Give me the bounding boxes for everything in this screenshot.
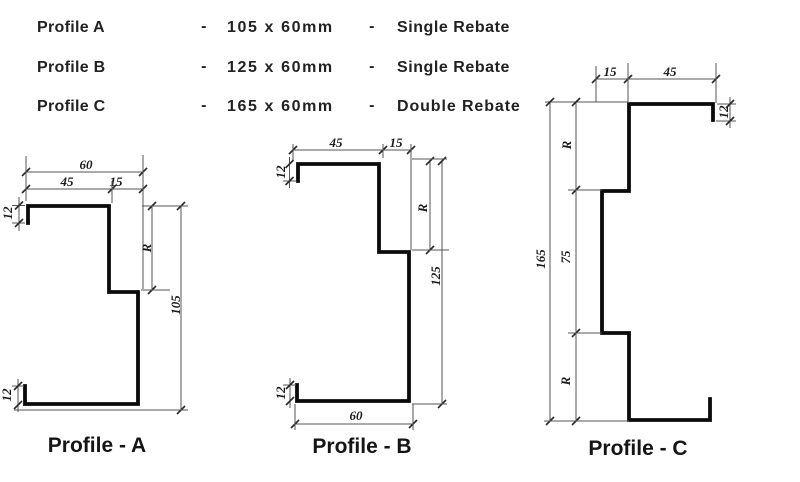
svg-text:105: 105 bbox=[168, 295, 183, 315]
svg-text:Profile C: Profile C bbox=[37, 98, 106, 115]
svg-text:12: 12 bbox=[716, 105, 731, 119]
svg-text:-: - bbox=[201, 97, 207, 114]
svg-text:Profile - A: Profile - A bbox=[48, 434, 146, 457]
svg-text:Double Rebate: Double Rebate bbox=[397, 98, 521, 115]
svg-text:75: 75 bbox=[558, 250, 573, 264]
svg-text:-: - bbox=[201, 58, 207, 75]
svg-text:Single Rebate: Single Rebate bbox=[397, 59, 510, 76]
svg-text:-: - bbox=[369, 58, 375, 75]
svg-text:125 x 60mm: 125 x 60mm bbox=[227, 59, 334, 76]
svg-text:Single Rebate: Single Rebate bbox=[397, 19, 510, 36]
svg-text:45: 45 bbox=[329, 135, 344, 150]
svg-text:R: R bbox=[415, 203, 430, 213]
svg-text:15: 15 bbox=[390, 135, 404, 150]
svg-text:15: 15 bbox=[604, 64, 618, 79]
svg-text:125: 125 bbox=[428, 266, 443, 286]
svg-text:-: - bbox=[369, 18, 375, 35]
svg-text:105 x 60mm: 105 x 60mm bbox=[227, 19, 334, 36]
svg-text:Profile - B: Profile - B bbox=[312, 435, 411, 458]
svg-text:R: R bbox=[558, 376, 573, 386]
svg-text:Profile - C: Profile - C bbox=[588, 437, 687, 460]
svg-text:12: 12 bbox=[273, 165, 288, 179]
svg-text:Profile A: Profile A bbox=[37, 19, 105, 36]
svg-text:12: 12 bbox=[0, 206, 15, 220]
svg-text:165: 165 bbox=[533, 249, 548, 269]
svg-text:45: 45 bbox=[663, 64, 678, 79]
svg-text:-: - bbox=[201, 18, 207, 35]
svg-text:-: - bbox=[369, 97, 375, 114]
svg-text:R: R bbox=[139, 243, 154, 253]
svg-text:45: 45 bbox=[60, 174, 75, 189]
svg-text:60: 60 bbox=[80, 157, 94, 172]
svg-text:R: R bbox=[559, 140, 574, 150]
svg-text:12: 12 bbox=[273, 386, 288, 400]
svg-text:60: 60 bbox=[350, 408, 364, 423]
svg-text:12: 12 bbox=[0, 388, 14, 402]
svg-text:165 x 60mm: 165 x 60mm bbox=[227, 98, 334, 115]
svg-text:Profile B: Profile B bbox=[37, 59, 106, 76]
